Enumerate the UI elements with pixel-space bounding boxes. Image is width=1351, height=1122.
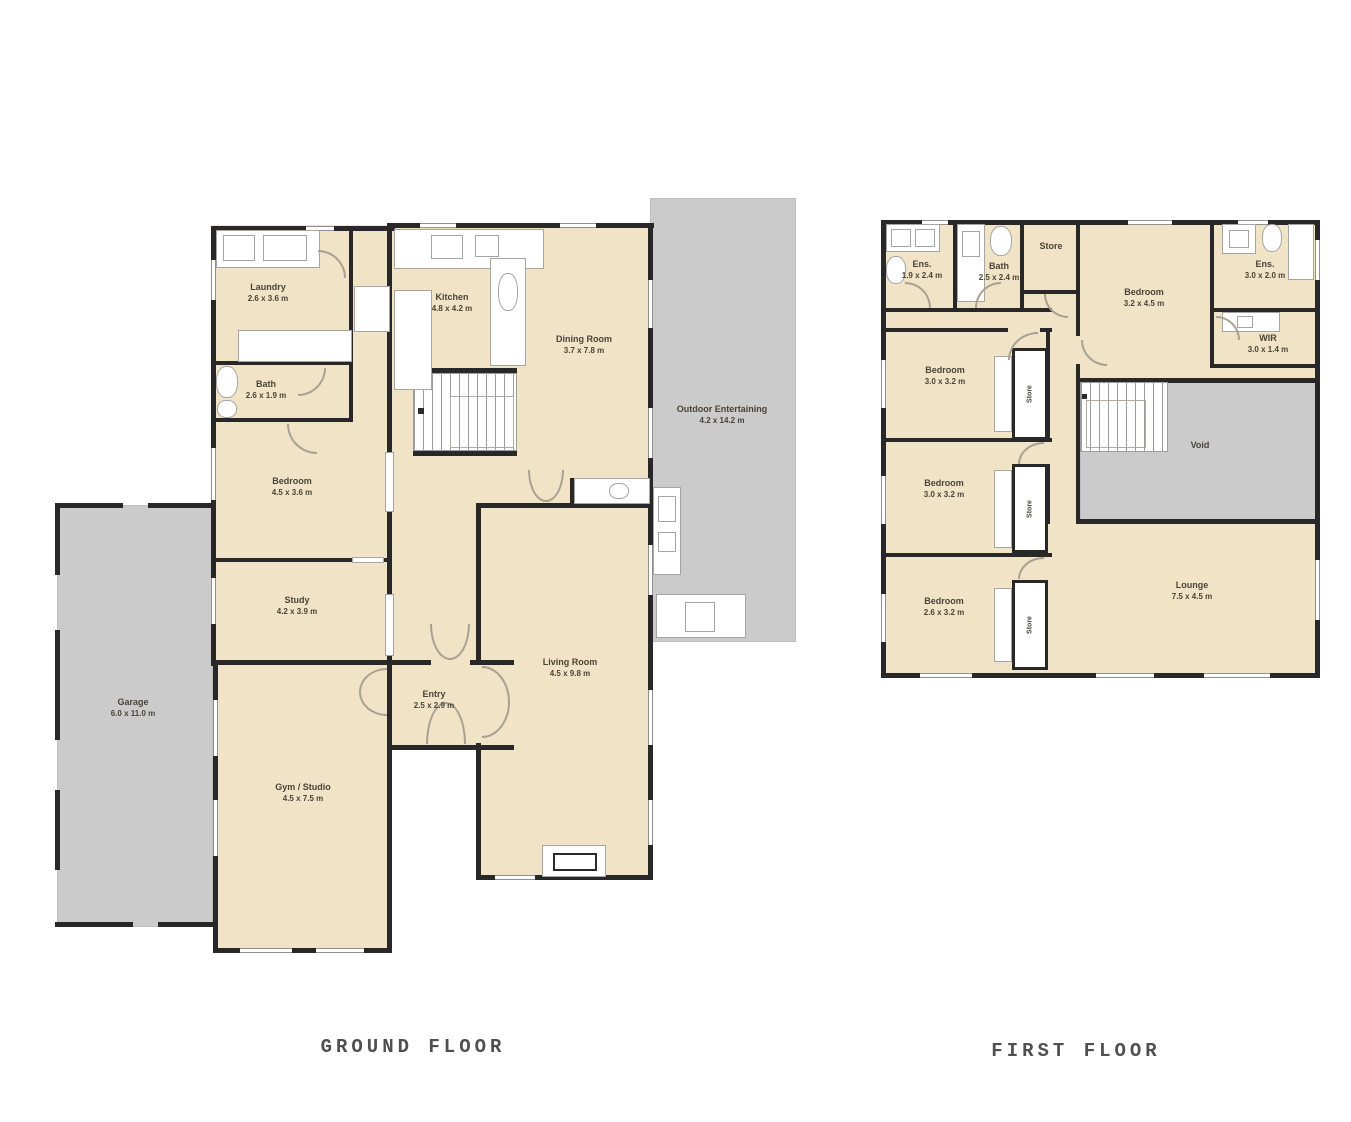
toilet-icon (609, 483, 629, 499)
room-name: Garage (111, 697, 155, 709)
wall (476, 503, 481, 665)
room-name: Entry (414, 689, 454, 701)
room-label-bedroom-2: Bedroom 3.0 x 3.2 m (925, 365, 965, 387)
island-sink-icon (498, 273, 518, 311)
wall (1210, 220, 1214, 368)
wall (1210, 364, 1320, 368)
stair-wall (413, 451, 517, 456)
stair-landing (1086, 400, 1146, 448)
room-dims: 3.0 x 3.2 m (925, 377, 965, 387)
wall (1076, 519, 1320, 524)
floorplan-image: Laundry 2.6 x 3.6 m Bath 2.6 x 1.9 m Kit… (0, 0, 1351, 1122)
room-dims: 2.6 x 1.9 m (246, 391, 286, 401)
garage-wall (55, 503, 123, 508)
wall (349, 226, 353, 422)
room-label-outdoor-entertaining: Outdoor Entertaining 4.2 x 14.2 m (677, 404, 768, 426)
cooktop-icon (475, 235, 499, 257)
room-name: Bath (246, 379, 286, 391)
window (648, 800, 653, 845)
laundry-bench (238, 330, 352, 362)
room-label-entry: Entry 2.5 x 2.9 m (414, 689, 454, 711)
room-label-lounge: Lounge 7.5 x 4.5 m (1172, 580, 1212, 602)
outdoor-bench (653, 487, 681, 575)
room-label-bedroom-4: Bedroom 2.6 x 3.2 m (924, 596, 964, 618)
window (881, 360, 886, 408)
room-label-bath-first: Bath 2.5 x 2.4 m (979, 261, 1019, 283)
window (560, 223, 596, 228)
window (648, 408, 653, 458)
room-dims: 4.5 x 9.8 m (543, 669, 598, 679)
window (648, 690, 653, 745)
room-dims: 3.7 x 7.8 m (556, 346, 612, 356)
room-label-study: Study 4.2 x 3.9 m (277, 595, 317, 617)
room-label-store-3: Store (1027, 616, 1034, 634)
kitchen-island (490, 258, 526, 366)
wall (476, 743, 481, 880)
room-dims: 3.0 x 3.2 m (924, 490, 964, 500)
toilet-icon (990, 226, 1012, 256)
room-name: Bedroom (925, 365, 965, 377)
wall (881, 328, 1008, 332)
stair-newel (1082, 394, 1087, 399)
window (420, 223, 456, 228)
room-label-garage: Garage 6.0 x 11.0 m (111, 697, 155, 719)
room-label-laundry: Laundry 2.6 x 3.6 m (248, 282, 288, 304)
room-label-dining-room: Dining Room 3.7 x 7.8 m (556, 334, 612, 356)
window (1096, 673, 1154, 678)
window (316, 948, 364, 953)
window (881, 476, 886, 524)
room-dims: 7.5 x 4.5 m (1172, 592, 1212, 602)
room-dims: 2.6 x 3.6 m (248, 294, 288, 304)
wall (390, 745, 514, 750)
room-name: Outdoor Entertaining (677, 404, 768, 416)
room-name: Laundry (248, 282, 288, 294)
wall (648, 223, 653, 507)
room-label-bedroom-main: Bedroom 3.2 x 4.5 m (1124, 287, 1164, 309)
bench-icon (1237, 316, 1253, 328)
fireplace (542, 845, 606, 877)
wall (881, 553, 1052, 557)
first-floor-title: FIRST FLOOR (991, 1040, 1160, 1062)
room-name: WIR (1248, 333, 1288, 345)
room-label-wir: WIR 3.0 x 1.4 m (1248, 333, 1288, 355)
room-name: Ens. (902, 259, 942, 271)
washer-icon (223, 235, 255, 261)
room-dims: 3.0 x 2.0 m (1245, 271, 1285, 281)
window (213, 700, 218, 756)
room-label-bath: Bath 2.6 x 1.9 m (246, 379, 286, 401)
wall (1020, 220, 1024, 312)
room-label-kitchen: Kitchen 4.8 x 4.2 m (432, 292, 472, 314)
window (1315, 240, 1320, 280)
room-name: Void (1191, 440, 1210, 452)
room-name: Study (277, 595, 317, 607)
window (495, 875, 535, 880)
sliding-door-panel (352, 557, 384, 563)
shower (1288, 224, 1314, 280)
laundry-tub-icon (263, 235, 307, 261)
robe-panel (994, 588, 1012, 662)
room-dims: 3.2 x 4.5 m (1124, 299, 1164, 309)
room-dims: 6.0 x 11.0 m (111, 709, 155, 719)
window (213, 800, 218, 856)
powder-room (574, 478, 650, 504)
hall-closet (354, 286, 390, 332)
garage-wall (158, 922, 213, 927)
bbq-icon (658, 496, 676, 522)
sliding-door-panel (385, 452, 394, 512)
room-dims: 4.5 x 3.6 m (272, 488, 312, 498)
sink-icon (431, 235, 463, 259)
room-dims: 3.0 x 1.4 m (1248, 345, 1288, 355)
room-dims: 4.5 x 7.5 m (275, 794, 331, 804)
robe-panel (994, 470, 1012, 548)
wall (881, 308, 1052, 312)
garage-wall (55, 922, 133, 927)
room-name: Dining Room (556, 334, 612, 346)
room-name: Bedroom (1124, 287, 1164, 299)
ensuite-bench (1222, 224, 1256, 254)
room-label-store-1: Store (1027, 385, 1034, 403)
window (920, 673, 972, 678)
room-dims: 4.2 x 14.2 m (677, 416, 768, 426)
ground-floor-title: GROUND FLOOR (321, 1036, 506, 1058)
room-dims: 2.6 x 3.2 m (924, 608, 964, 618)
room-name: Kitchen (432, 292, 472, 304)
toilet-icon (1262, 224, 1282, 252)
room-label-gym-studio: Gym / Studio 4.5 x 7.5 m (275, 782, 331, 804)
toilet-icon (216, 366, 238, 398)
window (1128, 220, 1172, 225)
stair-landing (450, 396, 514, 448)
window (1315, 560, 1320, 620)
shower-base-icon (962, 231, 980, 257)
room-label-store-hall: Store (1039, 241, 1062, 253)
garage-wall (148, 503, 213, 508)
garage-wall (55, 790, 60, 870)
wall (570, 478, 574, 505)
wall (470, 660, 514, 665)
room-dims: 2.5 x 2.4 m (979, 273, 1019, 283)
bbq-icon (658, 532, 676, 552)
room-label-ensuite-left: Ens. 1.9 x 2.4 m (902, 259, 942, 281)
room-name: Bedroom (272, 476, 312, 488)
robe-panel (994, 356, 1012, 432)
window (211, 578, 216, 624)
wall (387, 663, 392, 953)
basin-icon (891, 229, 911, 247)
outdoor-sink-icon (685, 602, 715, 632)
room-label-living-room: Living Room 4.5 x 9.8 m (543, 657, 598, 679)
room-name: Bedroom (924, 478, 964, 490)
room-label-store-2: Store (1027, 500, 1034, 518)
firebox-icon (553, 853, 597, 871)
sliding-door-panel (385, 594, 394, 656)
window (240, 948, 292, 953)
basin-icon (1229, 230, 1249, 248)
window (1204, 673, 1270, 678)
wall (1076, 220, 1080, 336)
basin-icon (217, 400, 237, 418)
window (881, 594, 886, 642)
room-label-ensuite-right: Ens. 3.0 x 2.0 m (1245, 259, 1285, 281)
room-dims: 2.5 x 2.9 m (414, 701, 454, 711)
room-name: Bedroom (924, 596, 964, 608)
wall (211, 660, 431, 665)
garage-wall (55, 630, 60, 740)
wall (211, 418, 353, 422)
ensuite-bench (886, 224, 940, 252)
outdoor-bench (656, 594, 746, 638)
stair-newel (418, 408, 424, 414)
room-name: Lounge (1172, 580, 1212, 592)
garage-wall (55, 505, 60, 575)
room-name: Living Room (543, 657, 598, 669)
laundry-bench (216, 230, 320, 268)
room-dims: 1.9 x 2.4 m (902, 271, 942, 281)
room-name: Store (1039, 241, 1062, 253)
room-label-bedroom-3: Bedroom 3.0 x 3.2 m (924, 478, 964, 500)
window (211, 448, 216, 500)
room-dims: 4.8 x 4.2 m (432, 304, 472, 314)
room-name: Bath (979, 261, 1019, 273)
room-name: Ens. (1245, 259, 1285, 271)
basin-icon (915, 229, 935, 247)
room-label-bedroom: Bedroom 4.5 x 3.6 m (272, 476, 312, 498)
kitchen-bench (394, 290, 432, 390)
room-name: Gym / Studio (275, 782, 331, 794)
window (648, 280, 653, 328)
room-label-void: Void (1191, 440, 1210, 452)
room-dims: 4.2 x 3.9 m (277, 607, 317, 617)
